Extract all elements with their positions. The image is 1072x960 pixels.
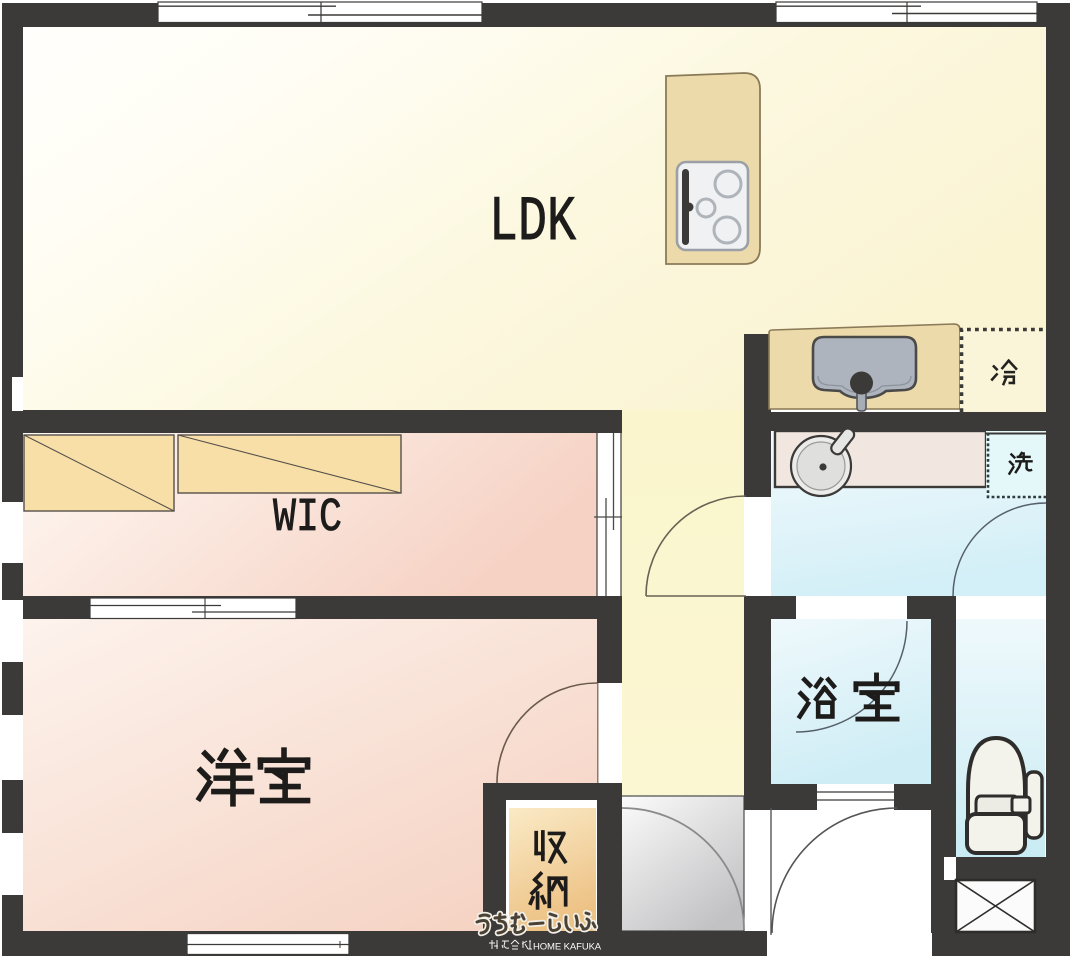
- svg-text:WIC: WIC: [273, 492, 342, 545]
- svg-text:HOME KAFUKA: HOME KAFUKA: [533, 942, 602, 953]
- svg-text:LDK: LDK: [489, 187, 576, 258]
